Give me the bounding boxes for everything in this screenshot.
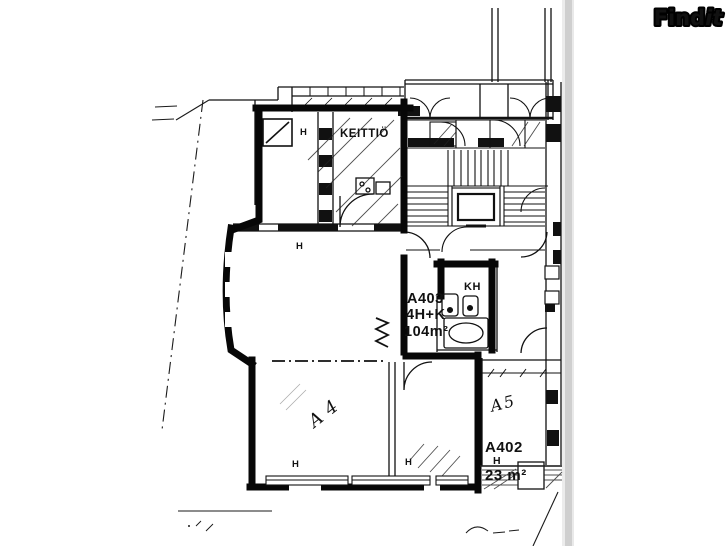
interior-walls [233, 112, 547, 478]
room-marker-living: H [296, 241, 303, 252]
apartment-id: A403 [407, 291, 444, 307]
bottom-window-frames [266, 476, 468, 485]
neighbor-area: 23 m² [485, 467, 527, 484]
scan-edge-bar [562, 0, 574, 546]
kitchen-label: KEITTIÖ [340, 127, 389, 140]
room-marker-kitchen: H [300, 127, 307, 138]
neighbor-id: A402 [485, 439, 523, 456]
findit-logo: Findit [654, 6, 724, 30]
window-slots [225, 252, 440, 491]
findit-logo-regular: Find [654, 6, 706, 30]
handwritten-notes: A4 A5 [303, 391, 518, 433]
facade-pocket-boxes [545, 266, 559, 304]
shaft-symbol [263, 119, 292, 146]
apartment-rooms: 4H+K [406, 307, 446, 323]
apartment-area: 104m² [404, 324, 448, 340]
bathroom-label: KH [464, 281, 481, 293]
floorplan-drawing: KEITTIÖ H H H H A403 4H+K 104m² KH A402 … [0, 0, 728, 546]
apartment-a403-outline [226, 102, 495, 490]
room-marker-bottom-middle: H [405, 457, 412, 468]
room-marker-bottom-left: H [292, 459, 299, 470]
handwritten-a5: A5 [486, 391, 518, 416]
handwritten-a4: A4 [303, 392, 348, 433]
findit-logo-italic: it [705, 6, 723, 30]
floorplan-scan: KEITTIÖ H H H H A403 4H+K 104m² KH A402 … [0, 0, 728, 546]
neighbor-room-marker: H [493, 455, 501, 467]
findit-logo-text: Findit [654, 6, 724, 30]
